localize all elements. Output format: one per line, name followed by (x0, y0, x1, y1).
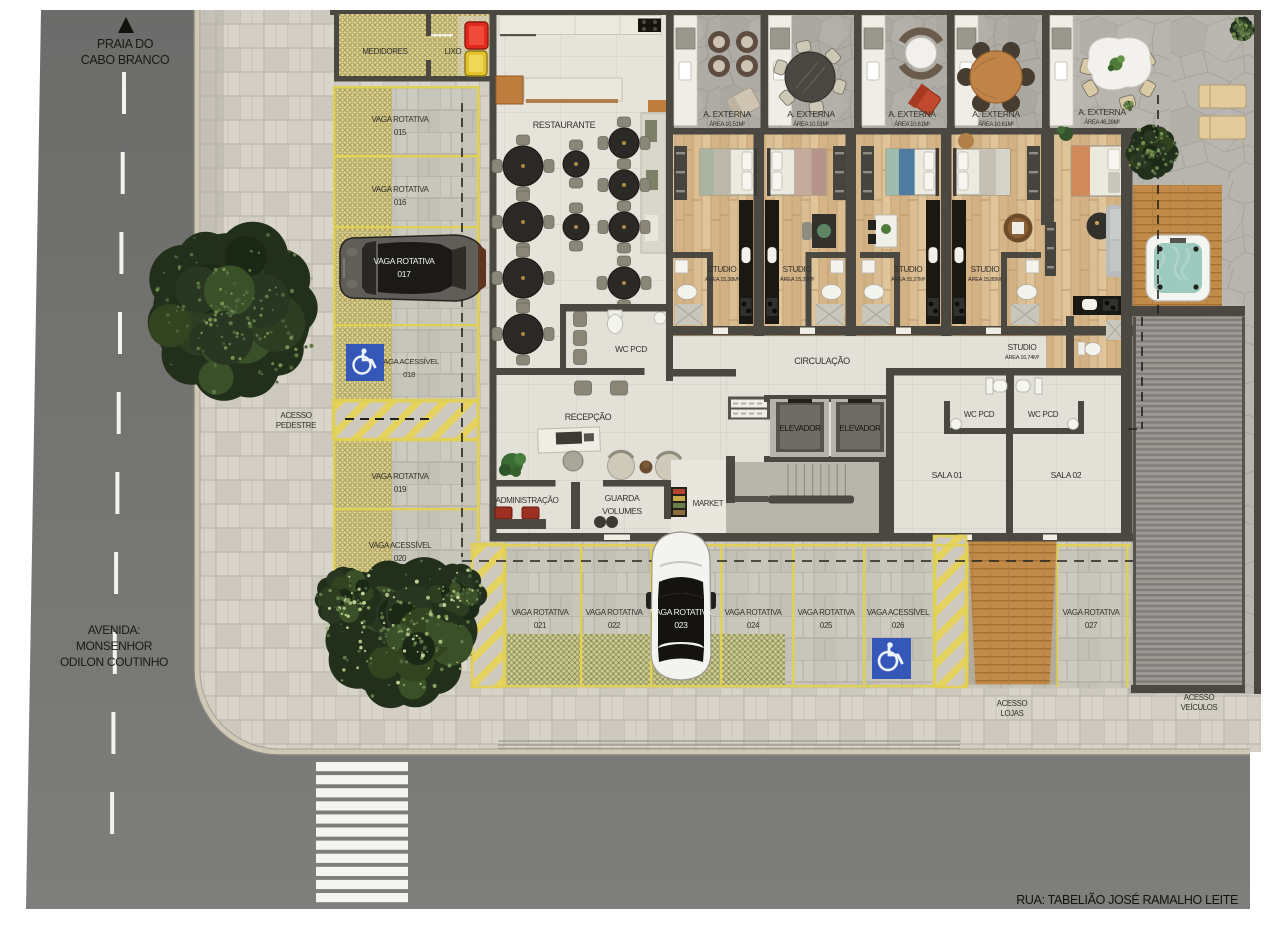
svg-text:A. EXTERNA: A. EXTERNA (888, 109, 936, 119)
svg-text:VAGA ROTATIVA: VAGA ROTATIVA (371, 185, 429, 194)
svg-text:ACESSO: ACESSO (997, 699, 1028, 708)
svg-text:ÁREA 15,35M²: ÁREA 15,35M² (780, 276, 815, 283)
svg-text:STUDIO: STUDIO (1008, 343, 1037, 352)
svg-text:WC PCD: WC PCD (1028, 410, 1059, 419)
svg-text:ÁREA 46,28M²: ÁREA 46,28M² (1084, 119, 1120, 126)
svg-text:CABO BRANCO: CABO BRANCO (81, 53, 170, 67)
svg-text:VAGA ROTATIVA: VAGA ROTATIVA (797, 608, 855, 617)
svg-text:026: 026 (892, 621, 905, 630)
svg-text:VEÍCULOS: VEÍCULOS (1181, 703, 1218, 712)
svg-text:WC PCD: WC PCD (964, 410, 995, 419)
svg-text:027: 027 (1085, 621, 1098, 630)
svg-text:RESTAURANTE: RESTAURANTE (533, 120, 596, 130)
svg-text:VAGA ROTATIVA: VAGA ROTATIVA (371, 115, 429, 124)
svg-text:ADMINISTRAÇÃO: ADMINISTRAÇÃO (496, 496, 559, 505)
svg-text:ÁREA 10,61M²: ÁREA 10,61M² (978, 121, 1014, 128)
svg-text:VAGA ACESSÍVEL: VAGA ACESSÍVEL (369, 541, 432, 550)
svg-text:025: 025 (820, 621, 833, 630)
svg-text:VAGA ACESSÍVEL: VAGA ACESSÍVEL (379, 357, 440, 366)
svg-text:ÁREA 10,51M²: ÁREA 10,51M² (709, 121, 745, 128)
svg-text:RUA: TABELIÃO JOSÉ RAMALHO LEI: RUA: TABELIÃO JOSÉ RAMALHO LEITE (1016, 892, 1238, 907)
svg-text:LOJAS: LOJAS (1001, 709, 1024, 718)
svg-text:WC PCD: WC PCD (615, 344, 647, 354)
svg-text:STUDIO: STUDIO (971, 265, 1000, 274)
svg-text:ÁREA 10,51M²: ÁREA 10,51M² (793, 121, 829, 128)
svg-text:015: 015 (394, 128, 407, 137)
svg-text:VAGA ROTATIVA: VAGA ROTATIVA (1062, 608, 1120, 617)
svg-text:GUARDA: GUARDA (605, 493, 640, 503)
svg-text:SALA 01: SALA 01 (932, 470, 963, 480)
svg-text:A. EXTERNA: A. EXTERNA (787, 109, 835, 119)
svg-text:A. EXTERNA: A. EXTERNA (1078, 107, 1126, 117)
svg-text:ACESSO: ACESSO (280, 411, 311, 420)
svg-text:VAGA ROTATIVA: VAGA ROTATIVA (374, 256, 436, 266)
svg-text:MONSENHOR: MONSENHOR (76, 639, 153, 653)
svg-text:024: 024 (747, 621, 760, 630)
svg-text:023: 023 (674, 620, 688, 630)
svg-text:ÁREA 16,74M²: ÁREA 16,74M² (1005, 354, 1040, 361)
svg-text:VAGA ROTATIVA: VAGA ROTATIVA (585, 608, 643, 617)
svg-text:A. EXTERNA: A. EXTERNA (703, 109, 751, 119)
svg-text:017: 017 (397, 269, 411, 279)
svg-text:ELEVADOR: ELEVADOR (779, 424, 821, 433)
svg-text:LIXO: LIXO (445, 47, 462, 56)
svg-text:A. EXTERNA: A. EXTERNA (972, 109, 1020, 119)
svg-text:PEDESTRE: PEDESTRE (276, 421, 316, 430)
svg-text:ELEVADOR: ELEVADOR (839, 424, 881, 433)
svg-text:VAGA ROTATIVA: VAGA ROTATIVA (651, 607, 713, 617)
svg-text:ÁREA 15,38M²: ÁREA 15,38M² (705, 276, 740, 283)
svg-text:VAGA ROTATIVA: VAGA ROTATIVA (724, 608, 782, 617)
svg-text:AVENIDA:: AVENIDA: (88, 623, 140, 637)
svg-text:MARKET: MARKET (693, 499, 724, 508)
svg-text:RECEPÇÃO: RECEPÇÃO (565, 412, 612, 422)
svg-text:PRAIA DO: PRAIA DO (97, 37, 154, 51)
svg-text:ACESSO: ACESSO (1184, 693, 1215, 702)
svg-text:STUDIO: STUDIO (783, 265, 812, 274)
svg-text:ODILON COUTINHO: ODILON COUTINHO (60, 655, 168, 669)
svg-text:018: 018 (403, 370, 415, 379)
svg-text:VAGA ROTATIVA: VAGA ROTATIVA (511, 608, 569, 617)
svg-text:020: 020 (394, 554, 407, 563)
svg-text:ÁREA 15,85M²: ÁREA 15,85M² (968, 276, 1003, 283)
svg-text:MEDIDORES: MEDIDORES (362, 47, 407, 56)
svg-text:019: 019 (394, 485, 407, 494)
svg-text:022: 022 (608, 621, 621, 630)
svg-text:STUDIO: STUDIO (894, 265, 923, 274)
svg-text:ÁREA 10,61M²: ÁREA 10,61M² (894, 121, 930, 128)
svg-text:VOLUMES: VOLUMES (602, 506, 642, 516)
svg-text:SALA 02: SALA 02 (1051, 470, 1082, 480)
svg-text:021: 021 (534, 621, 547, 630)
svg-text:VAGA ACESSÍVEL: VAGA ACESSÍVEL (867, 608, 930, 617)
svg-text:VAGA ROTATIVA: VAGA ROTATIVA (371, 472, 429, 481)
svg-text:STUDIO: STUDIO (708, 265, 737, 274)
svg-text:CIRCULAÇÃO: CIRCULAÇÃO (794, 356, 850, 366)
svg-text:016: 016 (394, 198, 407, 207)
svg-text:ÁREA 15,27M²: ÁREA 15,27M² (891, 276, 926, 283)
